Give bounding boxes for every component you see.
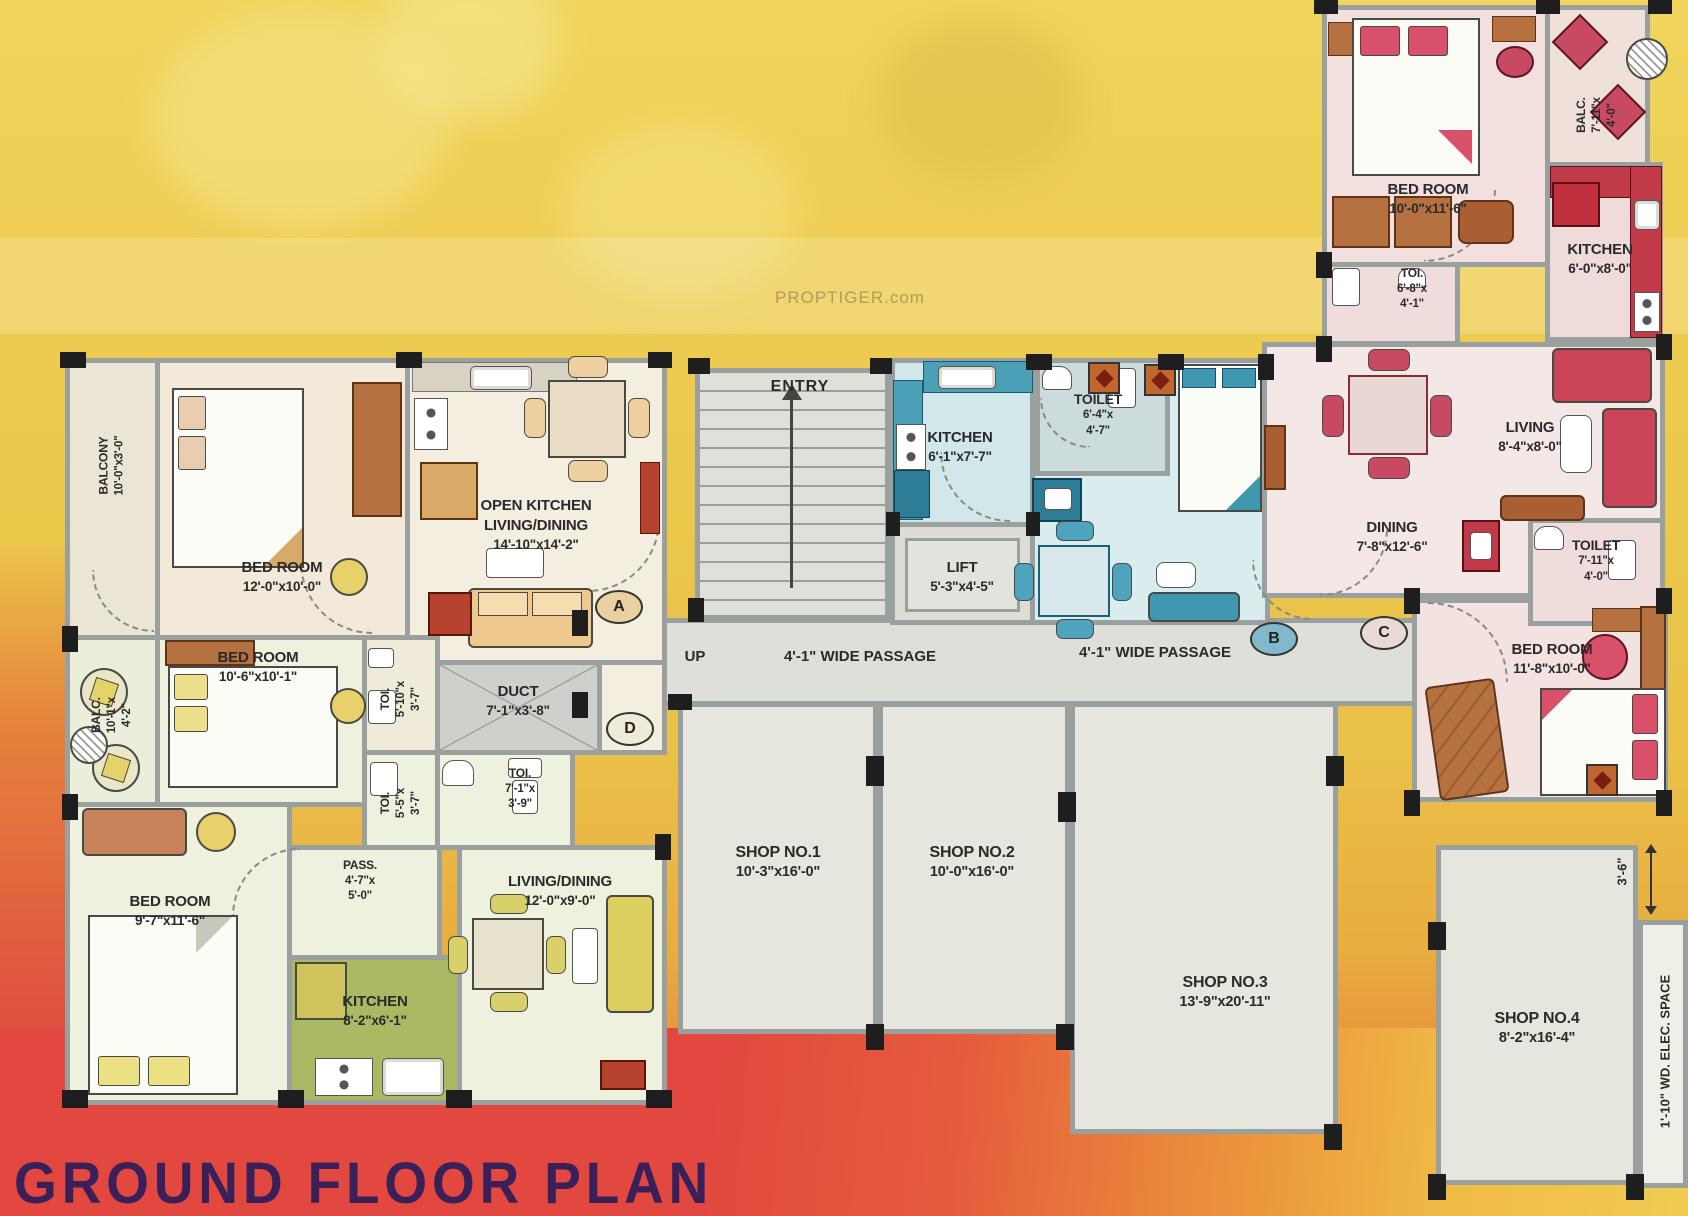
label-shop-4: SHOP NO.4 8'-2"x16'-4" xyxy=(1447,1008,1627,1048)
column xyxy=(572,610,588,636)
sofa xyxy=(82,808,187,856)
column xyxy=(1656,790,1672,816)
column xyxy=(1656,588,1672,614)
chair xyxy=(1056,619,1094,639)
dimension-label: 3'-6" xyxy=(1615,842,1630,902)
sink xyxy=(1634,200,1660,230)
column xyxy=(1158,354,1184,370)
column xyxy=(870,358,892,374)
column xyxy=(688,358,710,374)
column xyxy=(1324,1124,1342,1150)
column xyxy=(688,598,704,622)
label-living-right: LIVING 8'-4"x8'-0" xyxy=(1450,418,1610,456)
label-kitchen-mid: KITCHEN 6'-1"x7'-7" xyxy=(890,428,1030,466)
sink xyxy=(382,1058,444,1096)
column xyxy=(1626,1174,1644,1200)
armchair xyxy=(428,592,472,636)
label-dining-right: DINING 7'-8"x12'-6" xyxy=(1312,518,1472,556)
column xyxy=(1648,0,1672,14)
sofa-cushion xyxy=(478,592,528,616)
chair xyxy=(1496,46,1534,78)
column xyxy=(278,1090,304,1108)
chair xyxy=(1368,349,1410,371)
stove xyxy=(315,1058,373,1096)
label-toilet-mid: TOILET 6'-4"x 4'-7" xyxy=(1038,390,1158,439)
dining-table xyxy=(548,380,626,458)
column xyxy=(446,1090,472,1108)
chair xyxy=(1430,395,1452,437)
pillow xyxy=(178,436,206,470)
pillow xyxy=(1360,26,1400,56)
tv-unit xyxy=(1156,562,1196,588)
floor-plan-canvas: { "title": "GROUND FLOOR PLAN", "waterma… xyxy=(0,0,1688,1216)
sofa xyxy=(606,895,654,1013)
label-shop-2: SHOP NO.2 10'-0"x16'-0" xyxy=(892,842,1052,882)
label-bedroom-tl: BED ROOM 12'-0"x10'-0" xyxy=(202,558,362,596)
dimension-line xyxy=(1650,848,1652,910)
kitchen-cabinet xyxy=(894,470,930,518)
chair xyxy=(1322,395,1344,437)
entry-label: ENTRY xyxy=(760,378,840,396)
column xyxy=(60,352,86,368)
marker-b: B xyxy=(1250,622,1298,656)
label-shop-1: SHOP NO.1 10'-3"x16'-0" xyxy=(698,842,858,882)
wardrobe xyxy=(352,382,402,517)
column xyxy=(1326,756,1344,786)
chair xyxy=(546,936,566,974)
column xyxy=(1026,354,1052,370)
page-title: GROUND FLOOR PLAN xyxy=(14,1150,713,1216)
column xyxy=(866,756,884,786)
console xyxy=(600,1060,646,1090)
chair xyxy=(568,356,608,378)
column xyxy=(646,1090,672,1108)
passage-label-right: 4'-1" WIDE PASSAGE xyxy=(1055,644,1255,661)
label-bedroom-tr: BED ROOM 10'-0"x11'-6" xyxy=(1348,180,1508,218)
sofa xyxy=(1602,408,1657,508)
label-pass: PASS. 4'-7"x 5'-0" xyxy=(300,858,420,904)
label-toi-top: TOI. 5'-10"x 3'-7" xyxy=(378,644,424,754)
column xyxy=(1026,512,1040,536)
column xyxy=(1404,790,1420,816)
column xyxy=(1428,1174,1446,1200)
label-kitchen-left: KITCHEN 8'-2"x6'-1" xyxy=(295,992,455,1030)
pillow xyxy=(1182,368,1216,388)
dining-table xyxy=(1038,545,1110,617)
column xyxy=(655,834,671,860)
dresser xyxy=(1592,608,1647,632)
label-balcony-tl: BALCONY 10'-0"x3'-0" xyxy=(97,391,128,541)
column xyxy=(1536,0,1560,14)
console xyxy=(640,462,660,534)
column xyxy=(648,352,672,368)
dresser xyxy=(1492,16,1536,42)
stove xyxy=(1634,292,1660,332)
label-bedroom-bl: BED ROOM 9'-7"x11'-6" xyxy=(90,892,250,930)
column xyxy=(1428,922,1446,950)
blanket-fold xyxy=(1438,130,1472,164)
console xyxy=(1264,425,1286,490)
label-open-kitchen: OPEN KITCHEN LIVING/DINING 14'-10"x14'-2… xyxy=(456,496,616,553)
pillow xyxy=(1632,740,1658,780)
chair xyxy=(628,398,650,438)
kitchen-cabinet xyxy=(1552,182,1600,227)
label-living-dining-left: LIVING/DINING 12'-0"x9'-0" xyxy=(480,872,640,910)
wall-decor xyxy=(1586,764,1618,796)
room-shop-3 xyxy=(1070,702,1338,1134)
sofa xyxy=(1552,348,1652,403)
chair xyxy=(448,936,468,974)
column xyxy=(1316,336,1332,362)
stove xyxy=(414,398,448,450)
column xyxy=(1404,588,1420,614)
elec-space-label: 1'-10" WD. ELEC. SPACE xyxy=(1658,952,1673,1152)
column xyxy=(1314,0,1338,14)
chair xyxy=(568,460,608,482)
label-lift: LIFT 5'-3"x4'-5" xyxy=(892,558,1032,596)
column xyxy=(1656,334,1672,360)
column xyxy=(1056,1024,1074,1050)
chair xyxy=(1112,563,1132,601)
round-table xyxy=(1626,38,1668,80)
sofa xyxy=(1148,592,1240,622)
marker-d: D xyxy=(606,712,654,746)
column xyxy=(62,626,78,652)
column xyxy=(886,512,900,536)
column xyxy=(396,352,422,368)
pillow xyxy=(1632,694,1658,734)
blanket-fold xyxy=(1542,690,1572,720)
toilet-wc xyxy=(1332,268,1360,306)
dining-table xyxy=(472,918,544,990)
chair xyxy=(490,992,528,1012)
pillow xyxy=(178,396,206,430)
dimension-arrow-down-icon xyxy=(1645,906,1657,915)
pillow xyxy=(1222,368,1256,388)
stairs-direction-line xyxy=(790,398,793,588)
shade-blob xyxy=(880,20,1080,180)
label-duct: DUCT 7'-1"x3'-8" xyxy=(438,682,598,720)
marker-c: C xyxy=(1360,616,1408,650)
console xyxy=(1500,495,1585,521)
sink xyxy=(470,366,532,390)
up-label: UP xyxy=(665,648,725,665)
column xyxy=(1316,252,1332,278)
chair xyxy=(524,398,546,438)
watermark: PROPTIGER.com xyxy=(775,288,925,308)
label-bedroom-br: BED ROOM 11'-8"x10'-0" xyxy=(1472,640,1632,678)
pillow xyxy=(174,706,208,732)
dining-table xyxy=(1348,375,1428,455)
pillow xyxy=(1408,26,1448,56)
label-toi-mid: TOI. 5'-5"x 3'-7" xyxy=(378,748,424,858)
cabinet-oval xyxy=(1470,532,1492,560)
label-toi-right: TOI. 6'-8"x 4'-1" xyxy=(1362,266,1462,312)
wardrobe xyxy=(1640,606,1666,696)
column xyxy=(1258,354,1274,380)
marker-a: A xyxy=(595,590,643,624)
label-toi-bottom: TOI. 7'-1"x 3'-9" xyxy=(470,766,570,812)
column xyxy=(62,1090,88,1108)
blanket-fold xyxy=(1226,476,1260,510)
chair xyxy=(1056,521,1094,541)
label-toilet-right: TOILET 7'-11"x 4'-0" xyxy=(1536,536,1656,585)
chair xyxy=(1368,457,1410,479)
label-balc-ml: BALC. 10'-1"x 4'-2" xyxy=(89,650,135,780)
label-bedroom-ml: BED ROOM 10'-6"x10'-1" xyxy=(178,648,338,686)
sink xyxy=(938,366,996,389)
pillow xyxy=(98,1056,140,1086)
column xyxy=(1058,792,1076,822)
column xyxy=(62,794,78,820)
pillow xyxy=(148,1056,190,1086)
label-kitchen-right: KITCHEN 6'-0"x8'-0" xyxy=(1530,240,1670,278)
side-table xyxy=(1328,22,1354,56)
label-balc-tr: BALC. 7'-11"x 4'-0" xyxy=(1574,50,1620,180)
stool xyxy=(330,688,366,724)
label-shop-3: SHOP NO.3 13'-9"x20'-11" xyxy=(1125,972,1325,1012)
stool xyxy=(196,812,236,852)
side-table xyxy=(572,928,598,984)
wash-oval xyxy=(1044,488,1072,510)
dimension-arrow-up-icon xyxy=(1645,844,1657,853)
column xyxy=(668,694,692,710)
passage-label-left: 4'-1" WIDE PASSAGE xyxy=(760,648,960,665)
column xyxy=(866,1024,884,1050)
